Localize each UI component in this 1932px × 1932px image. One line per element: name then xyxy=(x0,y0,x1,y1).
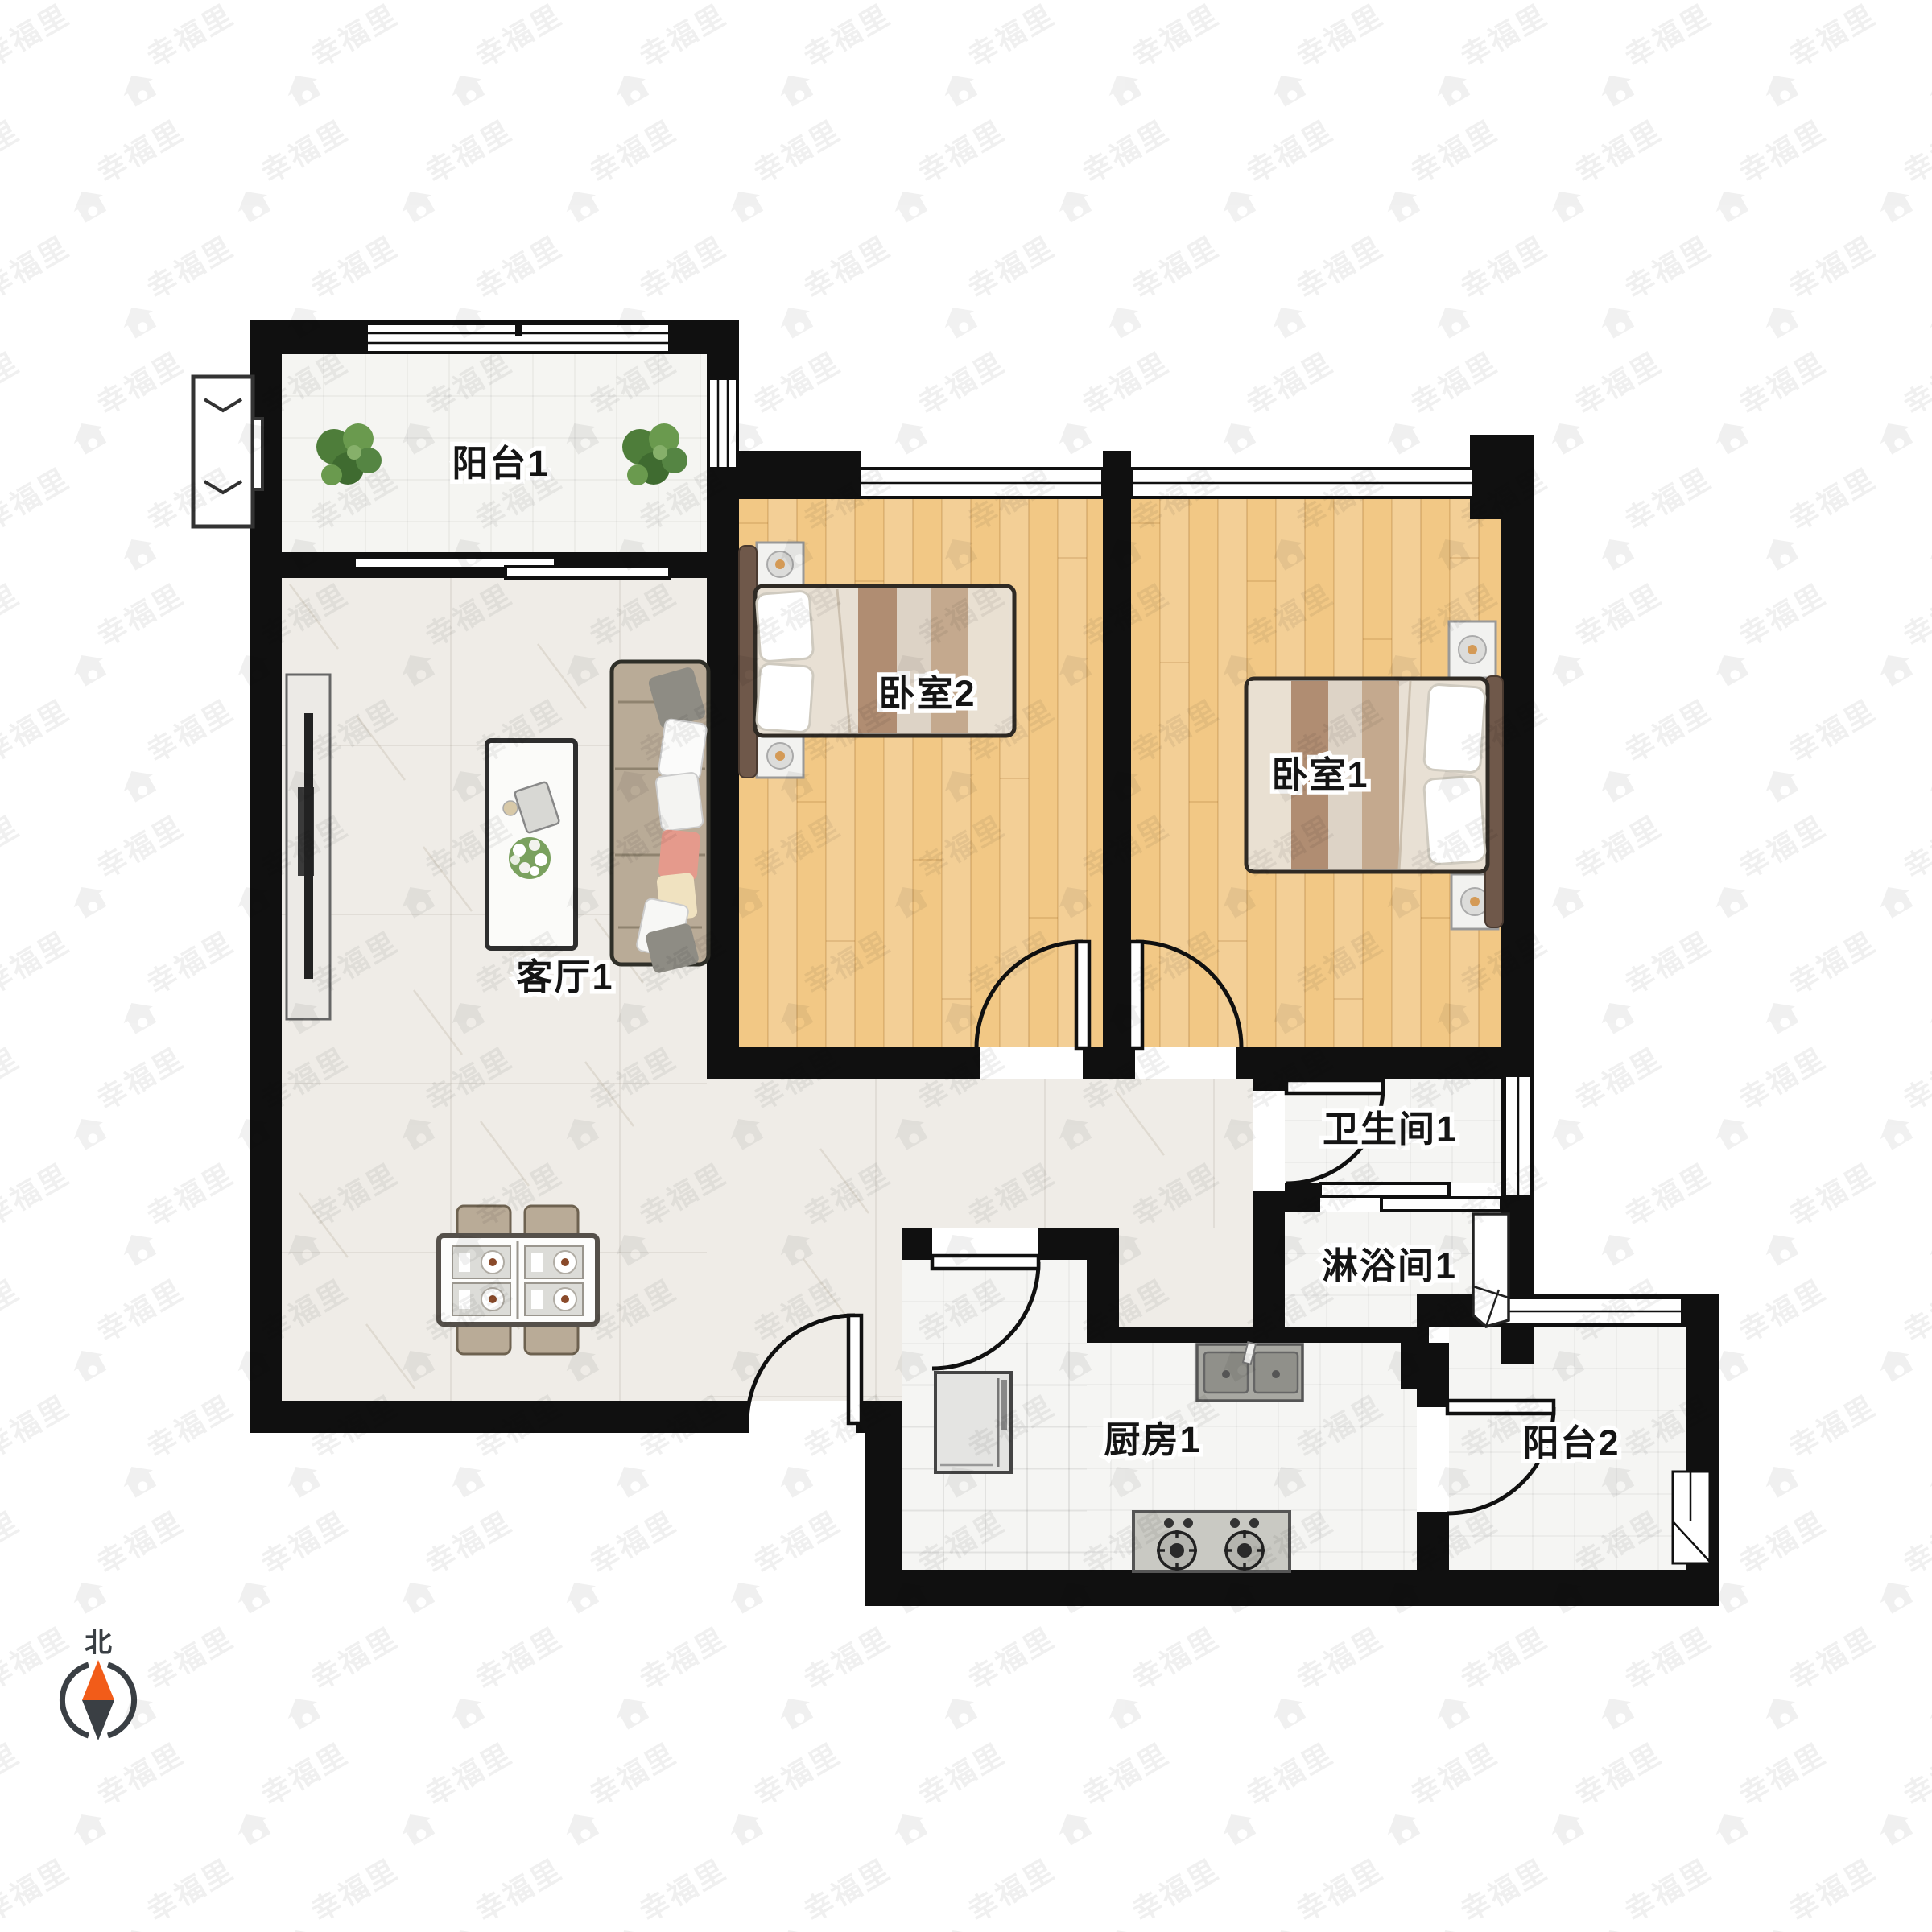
flower-bouquet xyxy=(509,837,551,879)
watermark xyxy=(763,1852,906,1932)
watermark xyxy=(106,229,249,341)
room-label-bathroom: 卫生间1 xyxy=(1323,1108,1458,1150)
watermark xyxy=(1534,114,1677,225)
watermark xyxy=(1420,1852,1563,1932)
place-setting xyxy=(525,1283,583,1315)
watermark xyxy=(1206,1736,1348,1848)
compass-north-label: 北 xyxy=(85,1628,112,1658)
watermark xyxy=(1534,1041,1677,1153)
compass: 北 xyxy=(62,1628,134,1740)
watermark xyxy=(1913,925,1932,1037)
watermark xyxy=(1370,114,1513,225)
watermark xyxy=(385,1736,527,1848)
room-label-bedroom2: 卧室2 xyxy=(878,673,976,714)
watermark xyxy=(599,1620,741,1732)
watermark xyxy=(1584,925,1727,1037)
watermark xyxy=(549,114,691,225)
watermark xyxy=(1913,1157,1932,1269)
watermark xyxy=(1256,1620,1398,1732)
watermark xyxy=(106,1852,249,1932)
watermark xyxy=(1699,809,1841,921)
watermark xyxy=(106,693,249,805)
watermark xyxy=(713,1736,856,1848)
watermark xyxy=(1420,0,1563,109)
watermark xyxy=(1699,345,1841,457)
watermark xyxy=(0,925,85,1037)
watermark xyxy=(435,1852,577,1932)
watermark xyxy=(0,114,35,225)
watermark xyxy=(1584,461,1727,573)
watermark xyxy=(1420,1620,1563,1732)
watermark xyxy=(1256,0,1398,109)
watermark xyxy=(106,0,249,109)
watermark xyxy=(549,1736,691,1848)
watermark xyxy=(0,1157,85,1269)
watermark xyxy=(1748,229,1891,341)
panel-balcony2 xyxy=(1673,1472,1710,1563)
watermark xyxy=(1534,809,1677,921)
room-label-shower: 淋浴间1 xyxy=(1322,1245,1457,1286)
watermark xyxy=(927,1852,1070,1932)
watermark xyxy=(1206,345,1348,457)
watermark xyxy=(713,114,856,225)
watermark xyxy=(1699,577,1841,689)
watermark xyxy=(1913,461,1932,573)
watermark xyxy=(0,345,35,457)
watermark xyxy=(927,1620,1070,1732)
watermark xyxy=(877,114,1020,225)
watermark xyxy=(56,1273,199,1385)
watermark xyxy=(0,1273,35,1385)
watermark xyxy=(221,1505,363,1616)
watermark xyxy=(1913,693,1932,805)
room-label-balcony2: 阳台2 xyxy=(1522,1422,1620,1463)
watermark xyxy=(1584,693,1727,805)
watermark xyxy=(1256,1852,1398,1932)
watermark xyxy=(1699,1736,1841,1848)
watermark xyxy=(1699,1505,1841,1616)
watermark xyxy=(763,0,906,109)
watermark xyxy=(0,1852,85,1932)
watermark xyxy=(1863,809,1932,921)
watermark xyxy=(270,1620,413,1732)
watermark xyxy=(1256,229,1398,341)
compass-needle-icon xyxy=(62,1660,134,1740)
watermark xyxy=(1863,1273,1932,1385)
watermark xyxy=(270,1852,413,1932)
watermark xyxy=(1092,229,1234,341)
watermark xyxy=(1748,1852,1891,1932)
watermark xyxy=(763,229,906,341)
watermark xyxy=(1092,1852,1234,1932)
watermark xyxy=(56,114,199,225)
watermark xyxy=(1913,1389,1932,1501)
watermark xyxy=(1092,1620,1234,1732)
watermark xyxy=(106,925,249,1037)
watermark xyxy=(56,809,199,921)
watermark xyxy=(1863,114,1932,225)
watermark xyxy=(1042,114,1184,225)
watermark xyxy=(927,229,1070,341)
watermark xyxy=(1748,1157,1891,1269)
watermark xyxy=(0,1389,85,1501)
watermark xyxy=(1748,925,1891,1037)
watermark xyxy=(1534,345,1677,457)
watermark xyxy=(1534,1736,1677,1848)
watermark xyxy=(1534,577,1677,689)
watermark xyxy=(221,114,363,225)
watermark xyxy=(56,1736,199,1848)
watermark xyxy=(1420,229,1563,341)
watermark xyxy=(1748,1389,1891,1501)
floorplan: 幸福里 xyxy=(0,0,1932,1932)
watermark xyxy=(435,0,577,109)
watermark xyxy=(549,1505,691,1616)
watermark xyxy=(1206,114,1348,225)
watermark xyxy=(1913,229,1932,341)
watermark xyxy=(1584,1157,1727,1269)
watermark xyxy=(0,1505,35,1616)
watermark xyxy=(0,1736,35,1848)
watermark xyxy=(1748,461,1891,573)
watermark xyxy=(599,0,741,109)
watermark xyxy=(1584,0,1727,109)
watermark xyxy=(1863,345,1932,457)
watermark xyxy=(1699,1273,1841,1385)
watermark xyxy=(927,0,1070,109)
watermark xyxy=(0,0,85,109)
watermark xyxy=(1863,577,1932,689)
watermark xyxy=(270,0,413,109)
watermark xyxy=(56,345,199,457)
watermark xyxy=(1584,229,1727,341)
watermark xyxy=(1913,1620,1932,1732)
watermark xyxy=(1584,1620,1727,1732)
watermark xyxy=(1863,1041,1932,1153)
watermark xyxy=(1584,1852,1727,1932)
watermark xyxy=(56,577,199,689)
watermark xyxy=(1092,0,1234,109)
watermark xyxy=(1042,1736,1184,1848)
watermark xyxy=(221,1736,363,1848)
watermark xyxy=(1699,114,1841,225)
watermark xyxy=(0,229,85,341)
watermark xyxy=(0,809,35,921)
watermark xyxy=(106,1389,249,1501)
watermark xyxy=(763,1620,906,1732)
watermark xyxy=(877,345,1020,457)
window-balcony1-right xyxy=(708,378,737,469)
watermark xyxy=(1748,693,1891,805)
watermark xyxy=(1913,0,1932,109)
watermark xyxy=(0,461,85,573)
watermark xyxy=(56,1041,199,1153)
watermark xyxy=(599,1852,741,1932)
watermark xyxy=(106,1157,249,1269)
watermark xyxy=(385,114,527,225)
watermark xyxy=(435,1620,577,1732)
watermark xyxy=(1370,1736,1513,1848)
watermark xyxy=(713,1505,856,1616)
watermark xyxy=(1748,1620,1891,1732)
watermark xyxy=(56,1505,199,1616)
place-setting xyxy=(525,1246,583,1278)
watermark xyxy=(0,693,85,805)
balcony2-door-opening xyxy=(1417,1407,1449,1512)
watermark xyxy=(1913,1852,1932,1932)
watermark xyxy=(1863,1736,1932,1848)
watermark xyxy=(385,1505,527,1616)
watermark xyxy=(1042,345,1184,457)
window-bedroom2 xyxy=(860,469,1103,497)
watermark xyxy=(877,1736,1020,1848)
watermark xyxy=(1748,0,1891,109)
watermark xyxy=(0,577,35,689)
watermark xyxy=(1699,1041,1841,1153)
watermark xyxy=(1863,1505,1932,1616)
watermark xyxy=(0,1041,35,1153)
